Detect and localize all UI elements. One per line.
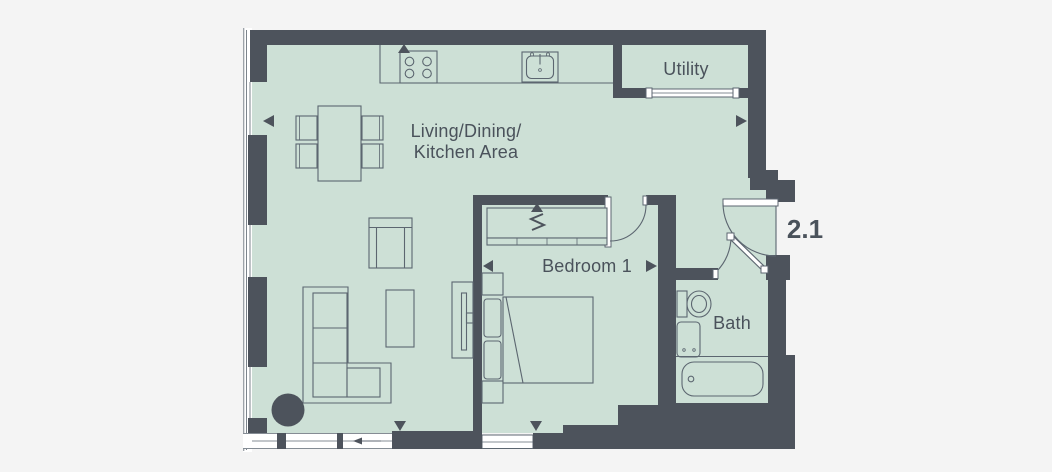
utility-left-wall: [613, 30, 622, 98]
pillow: [484, 341, 501, 379]
floor-plan-svg: Living/Dining/ Kitchen Area Bedroom 1 Ba…: [0, 0, 1052, 472]
wardrobe: [487, 208, 607, 245]
living-room-label-line2: Kitchen Area: [414, 142, 519, 162]
top-wall: [250, 30, 766, 45]
utility-label: Utility: [663, 59, 708, 79]
floor-plan-page: Living/Dining/ Kitchen Area Bedroom 1 Ba…: [0, 0, 1052, 472]
right-wall-upper: [748, 30, 766, 178]
basin-icon: [677, 322, 700, 357]
bath-top-wall: [676, 268, 718, 280]
bottom-mullion-1: [277, 433, 286, 449]
bath-bottom-wall: [658, 403, 795, 449]
top-left-corner: [250, 30, 267, 82]
bath-label: Bath: [713, 313, 751, 333]
tv-unit: [452, 282, 473, 358]
bottom-windows: [243, 433, 533, 449]
entrance-door-leaf: [723, 199, 778, 206]
utility-door: [646, 88, 739, 98]
living-room-label-line1: Living/Dining/: [411, 121, 522, 141]
dining-table: [318, 106, 361, 181]
utility-bottom-wall-left: [613, 88, 648, 98]
entry-lower-block: [766, 255, 790, 280]
bedroom-top-wall: [473, 195, 608, 205]
coffee-table: [386, 290, 414, 347]
left-pier-3: [248, 418, 267, 433]
mattress: [503, 297, 593, 383]
bedroom-bath-wall: [658, 195, 676, 448]
bottom-step-2: [563, 425, 618, 449]
bedroom-top-wall-right: [646, 195, 658, 205]
bedroom-left-wall: [473, 195, 482, 449]
side-table: [272, 394, 305, 427]
bottom-step-1: [533, 433, 563, 449]
bottom-wall-living: [392, 431, 473, 449]
bathtub-icon: [682, 362, 763, 396]
bottom-mullion-2: [337, 433, 343, 449]
bedroom-label: Bedroom 1: [542, 256, 632, 276]
nightstand: [482, 381, 503, 403]
pillow: [484, 299, 501, 337]
left-pier-2: [248, 277, 267, 367]
armchair: [369, 218, 412, 268]
left-glazing-band: [243, 28, 252, 452]
nightstand: [482, 273, 503, 295]
left-window-wall: [243, 28, 252, 452]
toilet-icon: [677, 291, 711, 317]
left-pier-1: [248, 135, 267, 225]
unit-number-label: 2.1: [787, 214, 823, 244]
bottom-step-3: [618, 405, 658, 449]
